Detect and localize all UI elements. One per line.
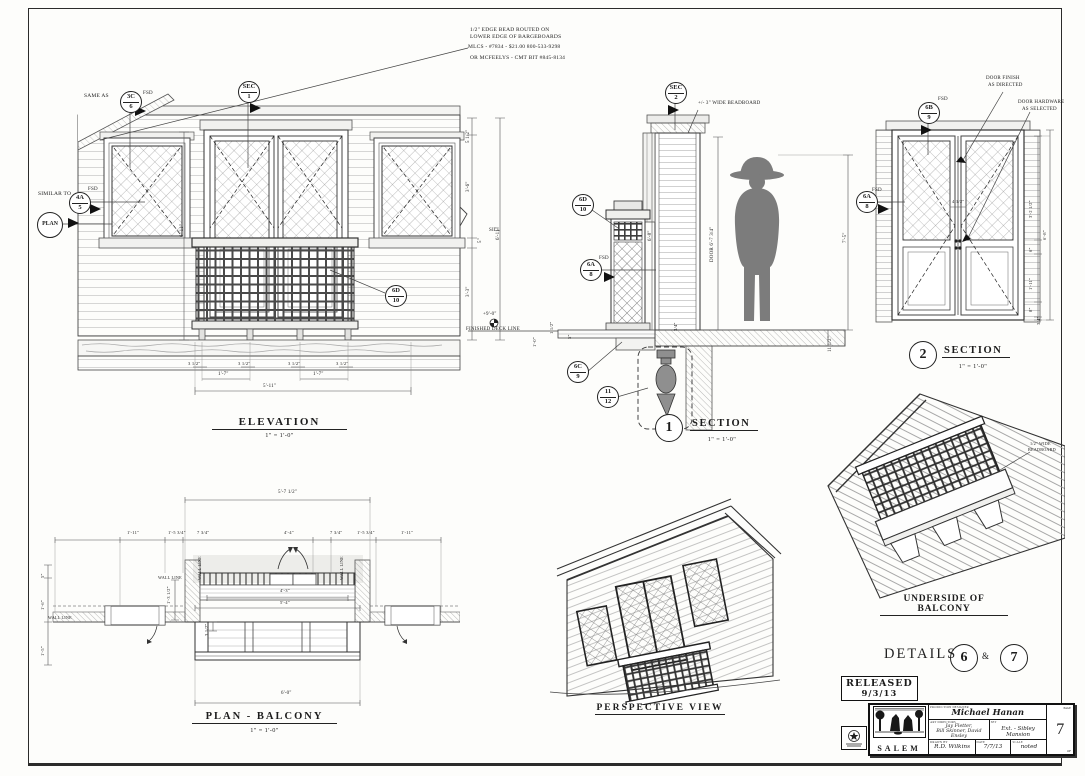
section1-number: 1 bbox=[655, 414, 683, 442]
s1-dim-112: 1 1/2" bbox=[549, 322, 554, 334]
elev-dim-312-2: 3 1/2" bbox=[238, 361, 250, 366]
detail-bubble-6d-sec: 6D10 bbox=[572, 194, 594, 216]
elev-dim-312-4: 3 1/2" bbox=[336, 361, 348, 366]
underside-note-1: 1/2" WIDE bbox=[1030, 441, 1051, 446]
detail-bubble-6b: 6B9 bbox=[918, 102, 940, 124]
plan-marker: PLAN bbox=[37, 212, 63, 238]
union-stamp-art bbox=[842, 727, 866, 749]
elev-dim-312-1: 3 1/2" bbox=[188, 361, 200, 366]
drawn-date-row: DRAWN BY R.D. Wilkins DATE 7/7/13 SCALE … bbox=[929, 740, 1046, 754]
s1-door-dim: DOOR 6'-7 3/4" bbox=[710, 227, 715, 262]
released-date: 9/3/13 bbox=[846, 689, 913, 699]
note-bargeboard-3: MLCS - #7834 - $21.00 800-533-9298 bbox=[468, 44, 560, 50]
of-label: OF bbox=[1067, 749, 1071, 753]
plan-title: PLAN - BALCONY bbox=[192, 711, 337, 724]
scale-field-label: SCALE bbox=[1012, 740, 1023, 744]
section-marker-sec1: SEC1 bbox=[238, 81, 260, 103]
elev-dim-611-inner: 6'-11" bbox=[180, 224, 185, 237]
show-logo: SALEM bbox=[870, 705, 929, 754]
witch-woodcut-art bbox=[873, 706, 926, 738]
detail-bubble-4a: 4A5 bbox=[69, 192, 91, 214]
detail-bubble-11: 1112 bbox=[597, 386, 619, 408]
title-block-fields: PRODUCTION DESIGNER Michael Hanan ART DI… bbox=[929, 705, 1046, 754]
s2-dim-68: 6'-8" bbox=[1042, 230, 1047, 240]
section-marker-sec2: SEC2 bbox=[665, 82, 687, 104]
wall-line-label-3: WALL LINE bbox=[197, 556, 202, 580]
section1-title: SECTION bbox=[690, 418, 758, 431]
detail-bubble-6d-elev: 6D10 bbox=[385, 285, 407, 307]
s1-dim-34: 3/4" bbox=[673, 322, 678, 331]
perspective-title: PERSPECTIVE VIEW bbox=[595, 703, 725, 715]
door-hardware-2: AS SELECTED bbox=[1022, 107, 1057, 112]
sheet-number-cell: PAGE 7 OF bbox=[1046, 705, 1073, 754]
door-finish-1: DOOR FINISH bbox=[986, 76, 1020, 81]
s2-dim-111: 1'-11" bbox=[1028, 278, 1033, 290]
details-amp: & bbox=[982, 651, 989, 661]
elev-dim-511: 5'-11" bbox=[263, 384, 276, 389]
plan-dim-111-l: 1'-11" bbox=[127, 530, 139, 535]
plan-dim-43: 4'-3" bbox=[280, 588, 290, 593]
plan-dim-734-l: 7 3/4" bbox=[197, 530, 209, 535]
designer-field-label: PRODUCTION DESIGNER bbox=[930, 705, 969, 709]
set-name: Ext. - Sibley Mansion bbox=[990, 720, 1047, 738]
fsd-label-6a: FSD bbox=[599, 256, 609, 261]
note-bargeboard-4: OR MCFEELYS - CMT BIT #845-8134 bbox=[470, 55, 565, 61]
beadboard-note: +/- 3" WIDE BEADBOARD bbox=[698, 101, 760, 106]
s2-dim-3212: 3'-2 1/2" bbox=[1028, 200, 1033, 218]
underside-note-2: BEADBOARD bbox=[1028, 447, 1056, 452]
fsd-label-3c: FSD bbox=[143, 91, 153, 96]
elev-dim-17-1: 1'-7" bbox=[218, 372, 229, 377]
designer-row: PRODUCTION DESIGNER Michael Hanan bbox=[929, 705, 1046, 720]
art-directors-2: Bill Skinner, David Ensley bbox=[929, 729, 989, 740]
wall-line-label-4: WALL LINE bbox=[339, 556, 344, 580]
sheet-number: 7 bbox=[1056, 721, 1064, 739]
same-as-label: SAME AS bbox=[84, 93, 109, 99]
set-field-label: SET bbox=[991, 720, 997, 724]
released-stamp: RELEASED 9/3/13 bbox=[841, 676, 918, 701]
wall-line-label-2: WALL LINE bbox=[48, 615, 72, 620]
plan-dim-1534-r: 1'-5 3/4" bbox=[357, 530, 375, 535]
details-label: DETAILS bbox=[884, 646, 957, 663]
section2-scale: 1" = 1'-0" bbox=[948, 363, 998, 370]
date-field-label: DATE bbox=[977, 740, 985, 744]
s2-dim-8: 8" bbox=[1028, 307, 1033, 312]
section2-title: SECTION bbox=[942, 345, 1010, 358]
similar-to-label: SIMILAR TO bbox=[38, 191, 71, 197]
s2-dim-6: 6" bbox=[1028, 247, 1033, 252]
section1-scale: 1" = 1'-0" bbox=[697, 436, 747, 443]
elev-dim-36: 3'-6" bbox=[466, 181, 471, 192]
plan-dim-16: 1'-6" bbox=[40, 600, 45, 610]
plan-dim-1312: 1'-3 1/2" bbox=[166, 586, 171, 604]
elev-dim-512: 5 1/2" bbox=[466, 130, 471, 143]
detail-bubble-6a-sec: 6A8 bbox=[580, 259, 602, 281]
plan-dim-734-r: 7 3/4" bbox=[330, 530, 342, 535]
fsd-label-4a: FSD bbox=[88, 187, 98, 192]
deck-line-label: FINISHED DECK LINE bbox=[466, 327, 520, 332]
elev-dim-312-3: 3 1/2" bbox=[288, 361, 300, 366]
elevation-scale: 1" = 1'-0" bbox=[252, 432, 307, 439]
s1-dim-1112: 11 1/2" bbox=[828, 336, 833, 352]
drawn-field-label: DRAWN BY bbox=[930, 740, 948, 744]
plan-dim-312: 3 1/2" bbox=[204, 624, 209, 636]
released-label: RELEASED bbox=[846, 678, 913, 689]
art-field-label: ART DIRECTORS bbox=[930, 720, 956, 724]
s1-dim-10: 1'-0" bbox=[532, 337, 537, 347]
plan-dim-54: 5'-4" bbox=[280, 600, 290, 605]
details-circle-7: 7 bbox=[1000, 644, 1028, 672]
title-block: SALEM PRODUCTION DESIGNER Michael Hanan … bbox=[868, 703, 1075, 756]
detail-bubble-3c: 3C6 bbox=[120, 91, 142, 113]
s2-dim-34: 3/4" bbox=[1036, 316, 1041, 325]
elev-dim-5: 5" bbox=[478, 238, 483, 243]
show-name: SALEM bbox=[877, 744, 920, 753]
note-bargeboard-2: LOWER EDGE OF BARGEBOARDS bbox=[470, 34, 561, 40]
plan-dim-5712: 5'-7 1/2" bbox=[278, 490, 297, 495]
s2-dim-412: 4 1/2" bbox=[952, 199, 964, 204]
note-bargeboard-1: 1/2" EDGE BEAD ROUTED ON bbox=[470, 27, 549, 33]
s1-dim-68: 6'-8" bbox=[648, 230, 653, 241]
deck-elevation-marker bbox=[490, 319, 498, 327]
plan-dim-111-r: 1'-11" bbox=[401, 530, 413, 535]
section2-number: 2 bbox=[909, 341, 937, 369]
plan-dim-15: 1'-5" bbox=[40, 646, 45, 656]
elev-dim-17-2: 1'-7" bbox=[313, 372, 324, 377]
art-set-row: ART DIRECTORS Jay Fletter, Bill Skinner,… bbox=[929, 720, 1046, 741]
s1-dim-5: 5" bbox=[567, 334, 572, 339]
union-stamp bbox=[841, 726, 867, 750]
door-finish-2: AS DIRECTED bbox=[988, 83, 1023, 88]
deck-elev-value: +9'-0" bbox=[483, 312, 497, 317]
plan-scale: 1" = 1'-0" bbox=[242, 727, 287, 734]
detail-bubble-6c: 6C9 bbox=[567, 361, 589, 383]
s1-dim-75: 7'-5" bbox=[843, 232, 848, 243]
underside-title: UNDERSIDE OF BALCONY bbox=[880, 594, 1008, 616]
plan-dim-44: 4'-4" bbox=[284, 530, 294, 535]
page-field-label: PAGE bbox=[1063, 706, 1071, 710]
door-hardware-1: DOOR HARDWARE bbox=[1018, 100, 1064, 105]
plan-dim-5: 5" bbox=[40, 573, 45, 578]
fsd-label-6b: FSD bbox=[938, 97, 948, 102]
wall-line-label-1: WALL LINE bbox=[158, 575, 182, 580]
plan-dim-1534-l: 1'-5 3/4" bbox=[168, 530, 186, 535]
fsd-label-6a2: FSD bbox=[872, 188, 882, 193]
drawing-sheet: 3C6 SEC1 4A5 PLAN 6D10 SEC2 6D10 6A8 6C9… bbox=[0, 0, 1085, 776]
elev-dim-33: 3'-3" bbox=[466, 286, 471, 297]
detail-bubble-6a-sec2: 6A8 bbox=[856, 191, 878, 213]
elevation-title: ELEVATION bbox=[212, 416, 347, 430]
plan-dim-60: 6'-0" bbox=[281, 691, 292, 696]
elev-dim-611-overall: 6'-11" bbox=[496, 227, 501, 240]
